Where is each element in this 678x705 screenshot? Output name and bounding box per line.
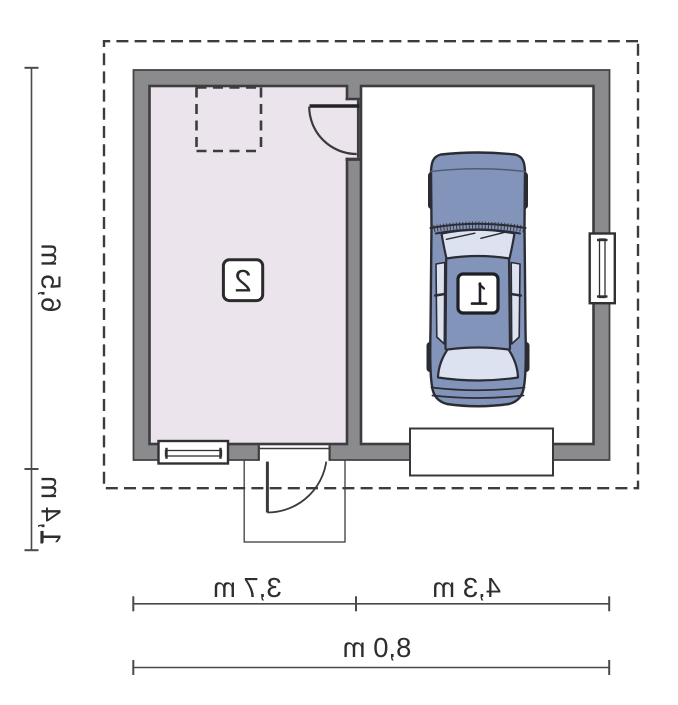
- svg-text:4,3 m: 4,3 m: [432, 572, 501, 603]
- svg-text:3,7 m: 3,7 m: [213, 572, 282, 603]
- svg-text:2: 2: [234, 262, 252, 298]
- svg-text:8,0 m: 8,0 m: [343, 632, 412, 663]
- svg-text:1,4 m: 1,4 m: [36, 476, 67, 545]
- svg-text:6,5 m: 6,5 m: [36, 244, 67, 313]
